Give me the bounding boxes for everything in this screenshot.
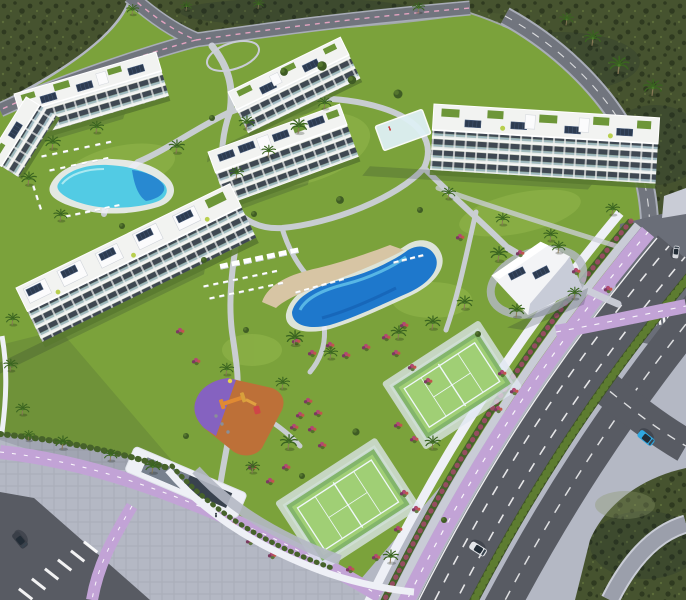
person-walking — [215, 513, 217, 518]
aerial-render — [0, 0, 686, 600]
play-ball-yellow — [228, 379, 232, 383]
